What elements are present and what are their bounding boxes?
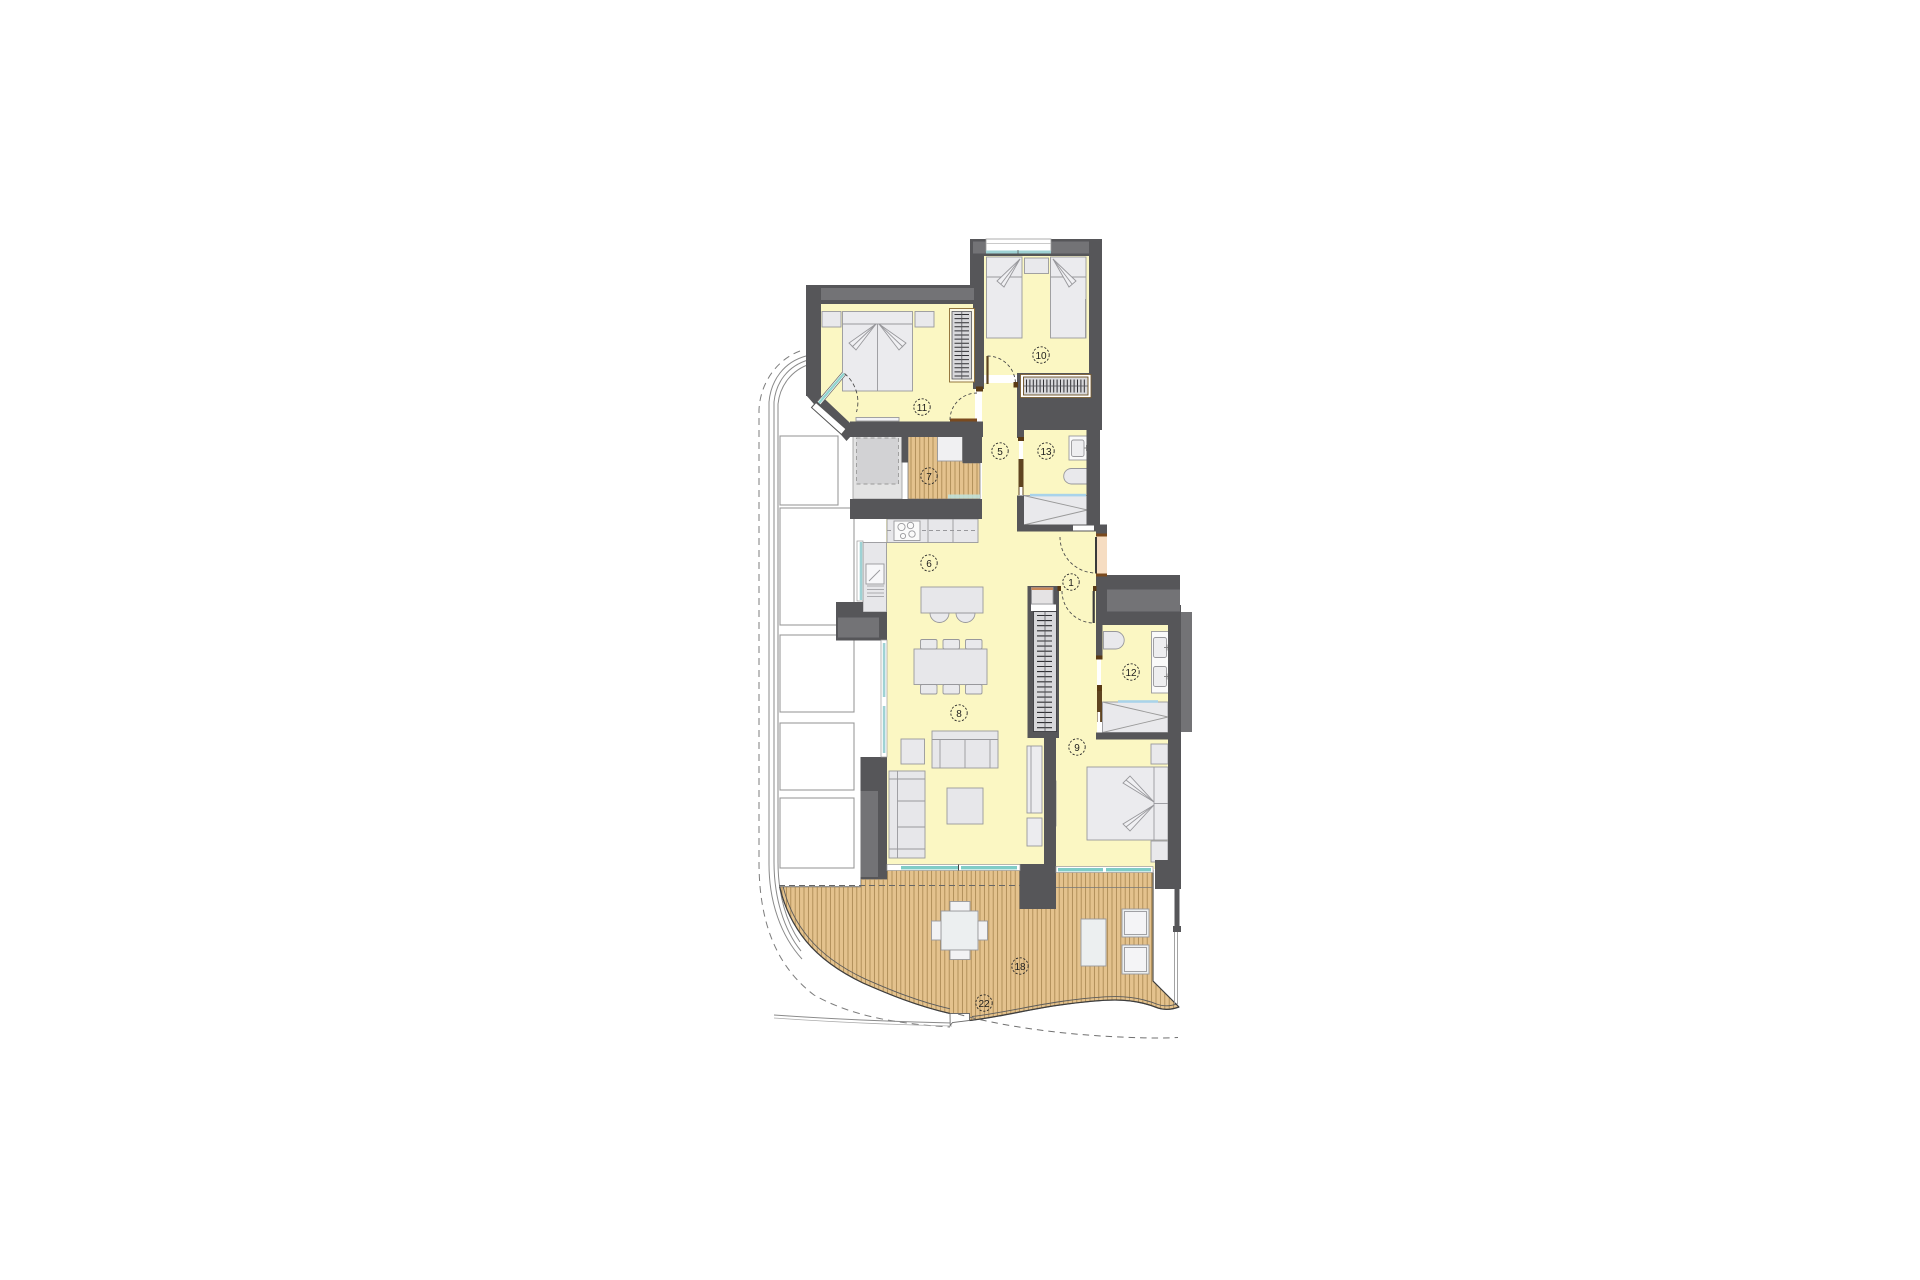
svg-text:13: 13 [1040,447,1052,458]
svg-text:7: 7 [926,472,932,483]
svg-text:9: 9 [1074,743,1080,754]
svg-text:11: 11 [917,403,928,414]
svg-text:5: 5 [997,447,1003,458]
svg-text:18: 18 [1014,962,1026,973]
svg-text:10: 10 [1035,351,1047,362]
svg-text:6: 6 [926,559,932,570]
svg-text:12: 12 [1125,668,1137,679]
svg-text:1: 1 [1068,578,1074,589]
svg-text:22: 22 [978,999,990,1010]
svg-text:8: 8 [956,709,962,720]
